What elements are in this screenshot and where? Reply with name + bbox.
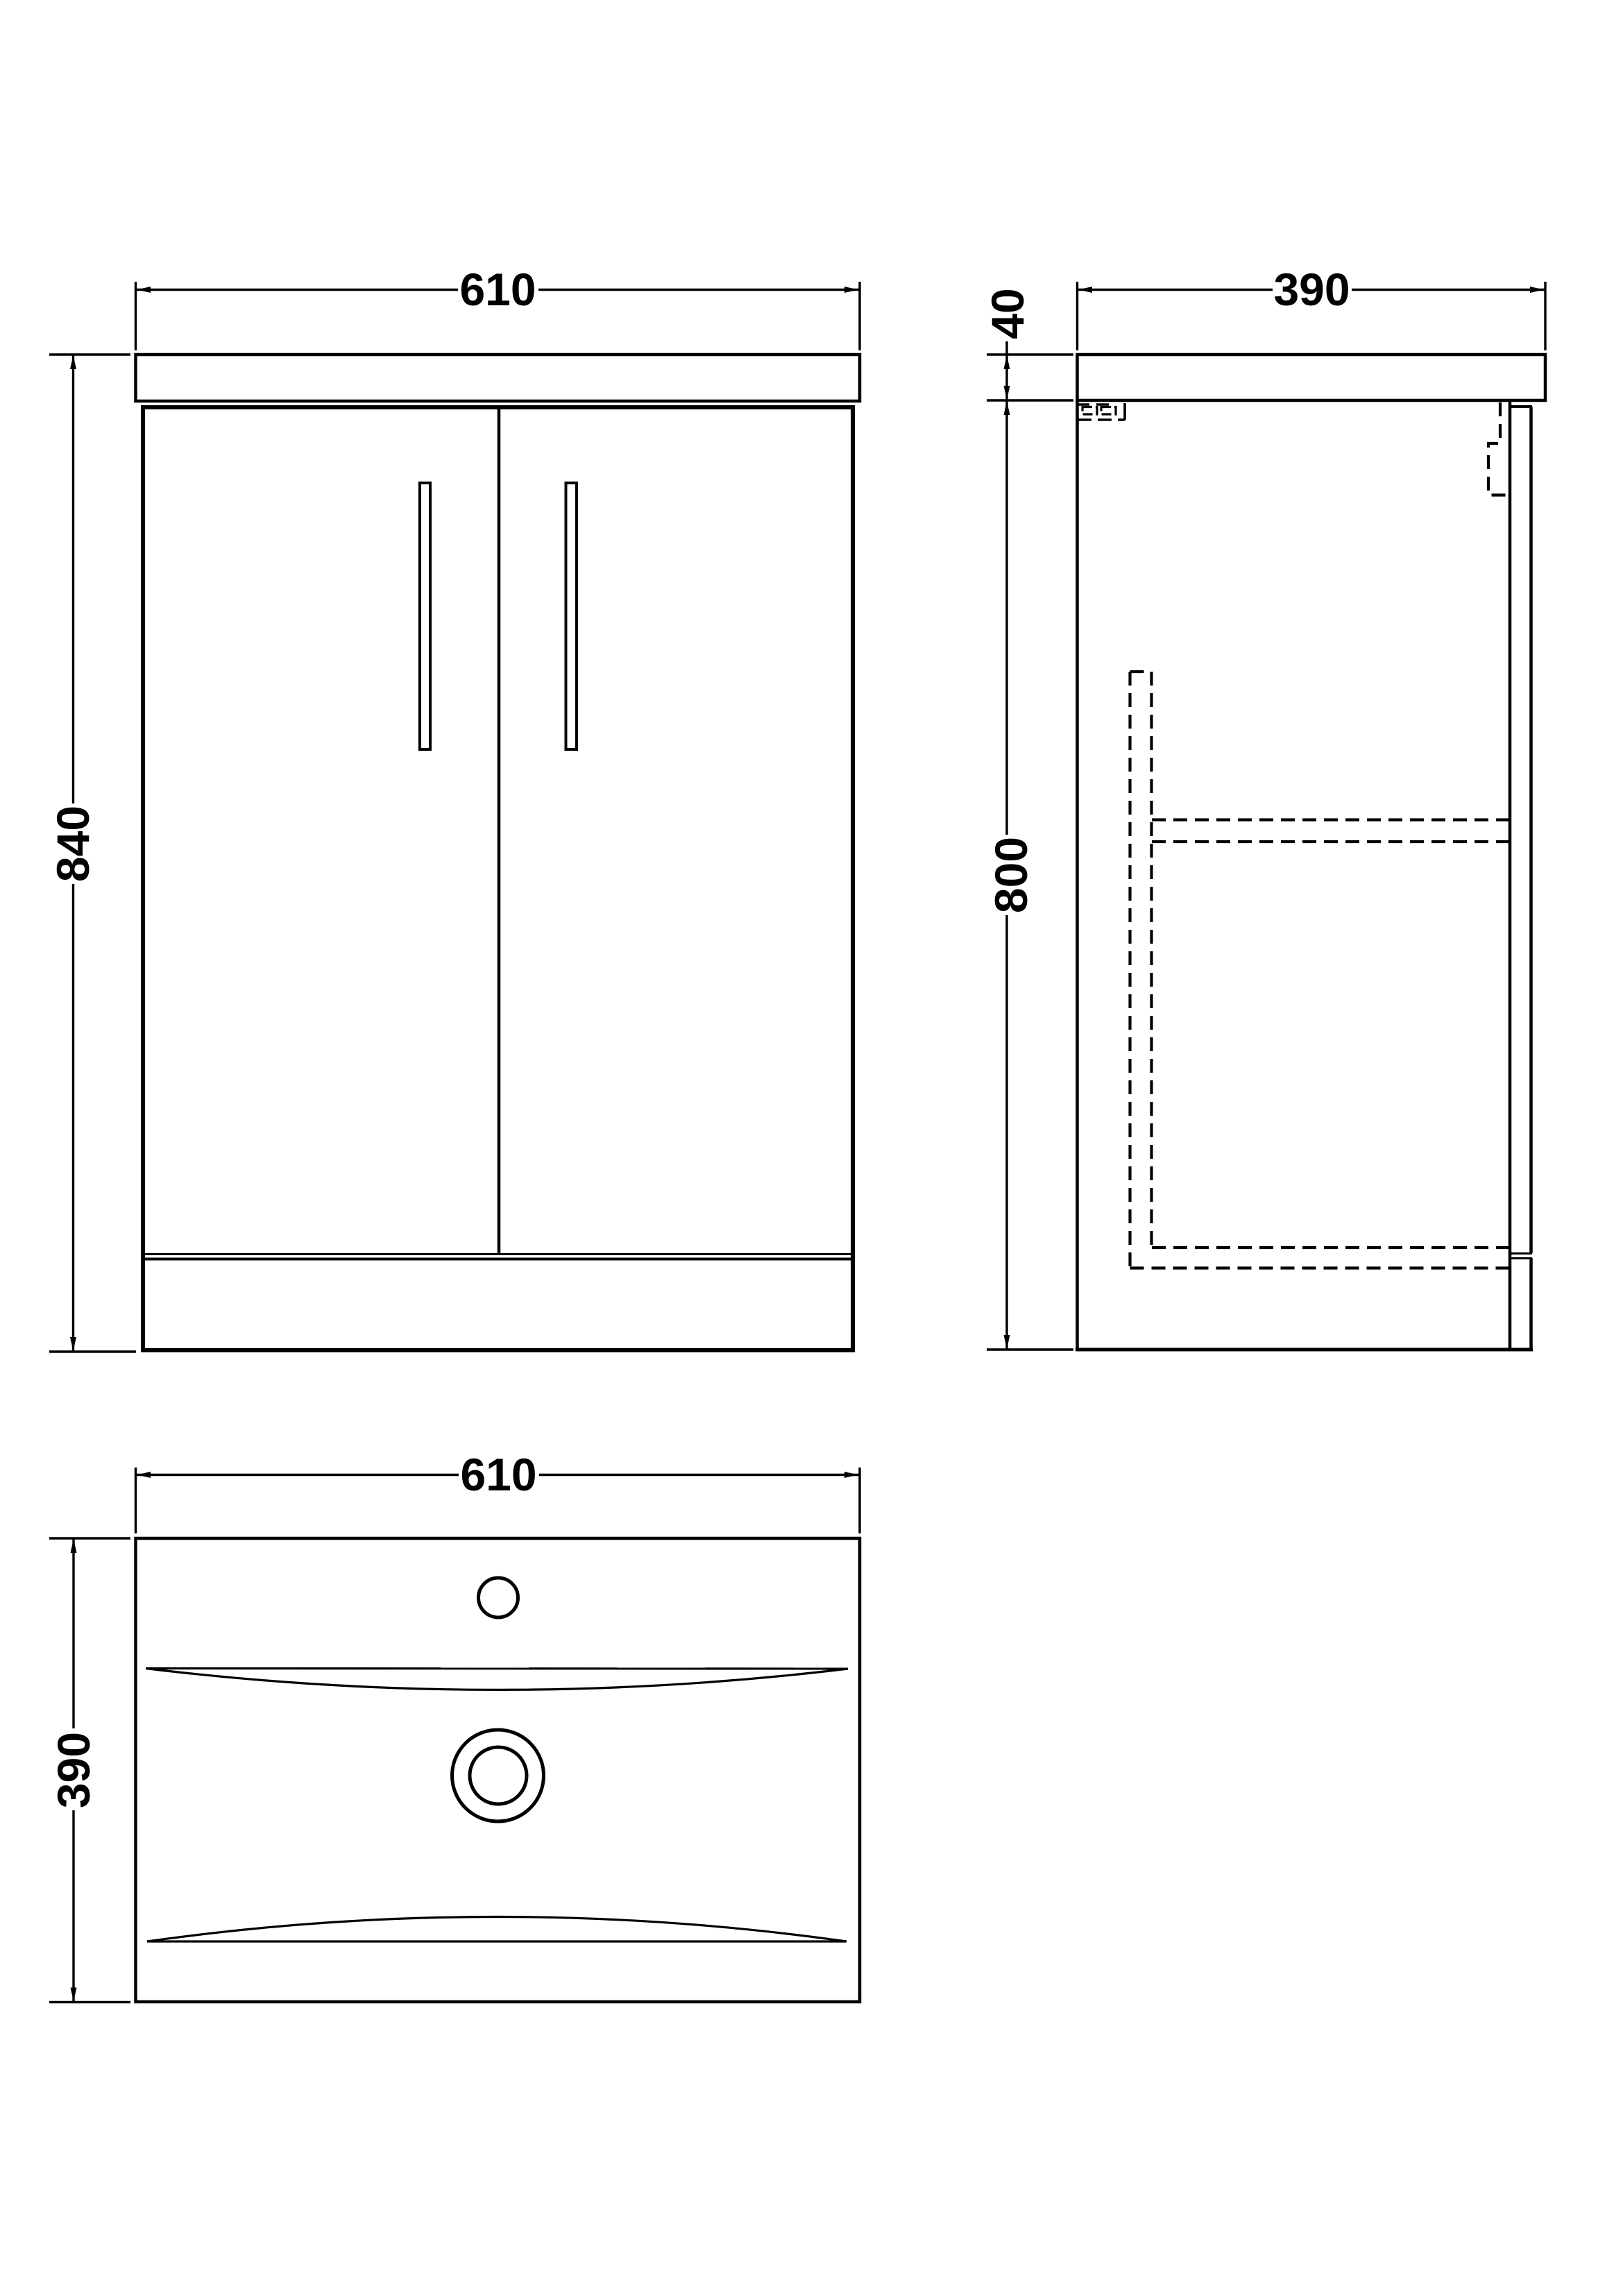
svg-text:390: 390: [48, 1732, 99, 1808]
svg-text:610: 610: [459, 264, 536, 315]
svg-text:610: 610: [460, 1449, 536, 1500]
svg-text:40: 40: [982, 288, 1033, 339]
svg-text:800: 800: [985, 837, 1037, 913]
svg-text:390: 390: [1273, 264, 1350, 315]
svg-text:840: 840: [47, 806, 99, 882]
